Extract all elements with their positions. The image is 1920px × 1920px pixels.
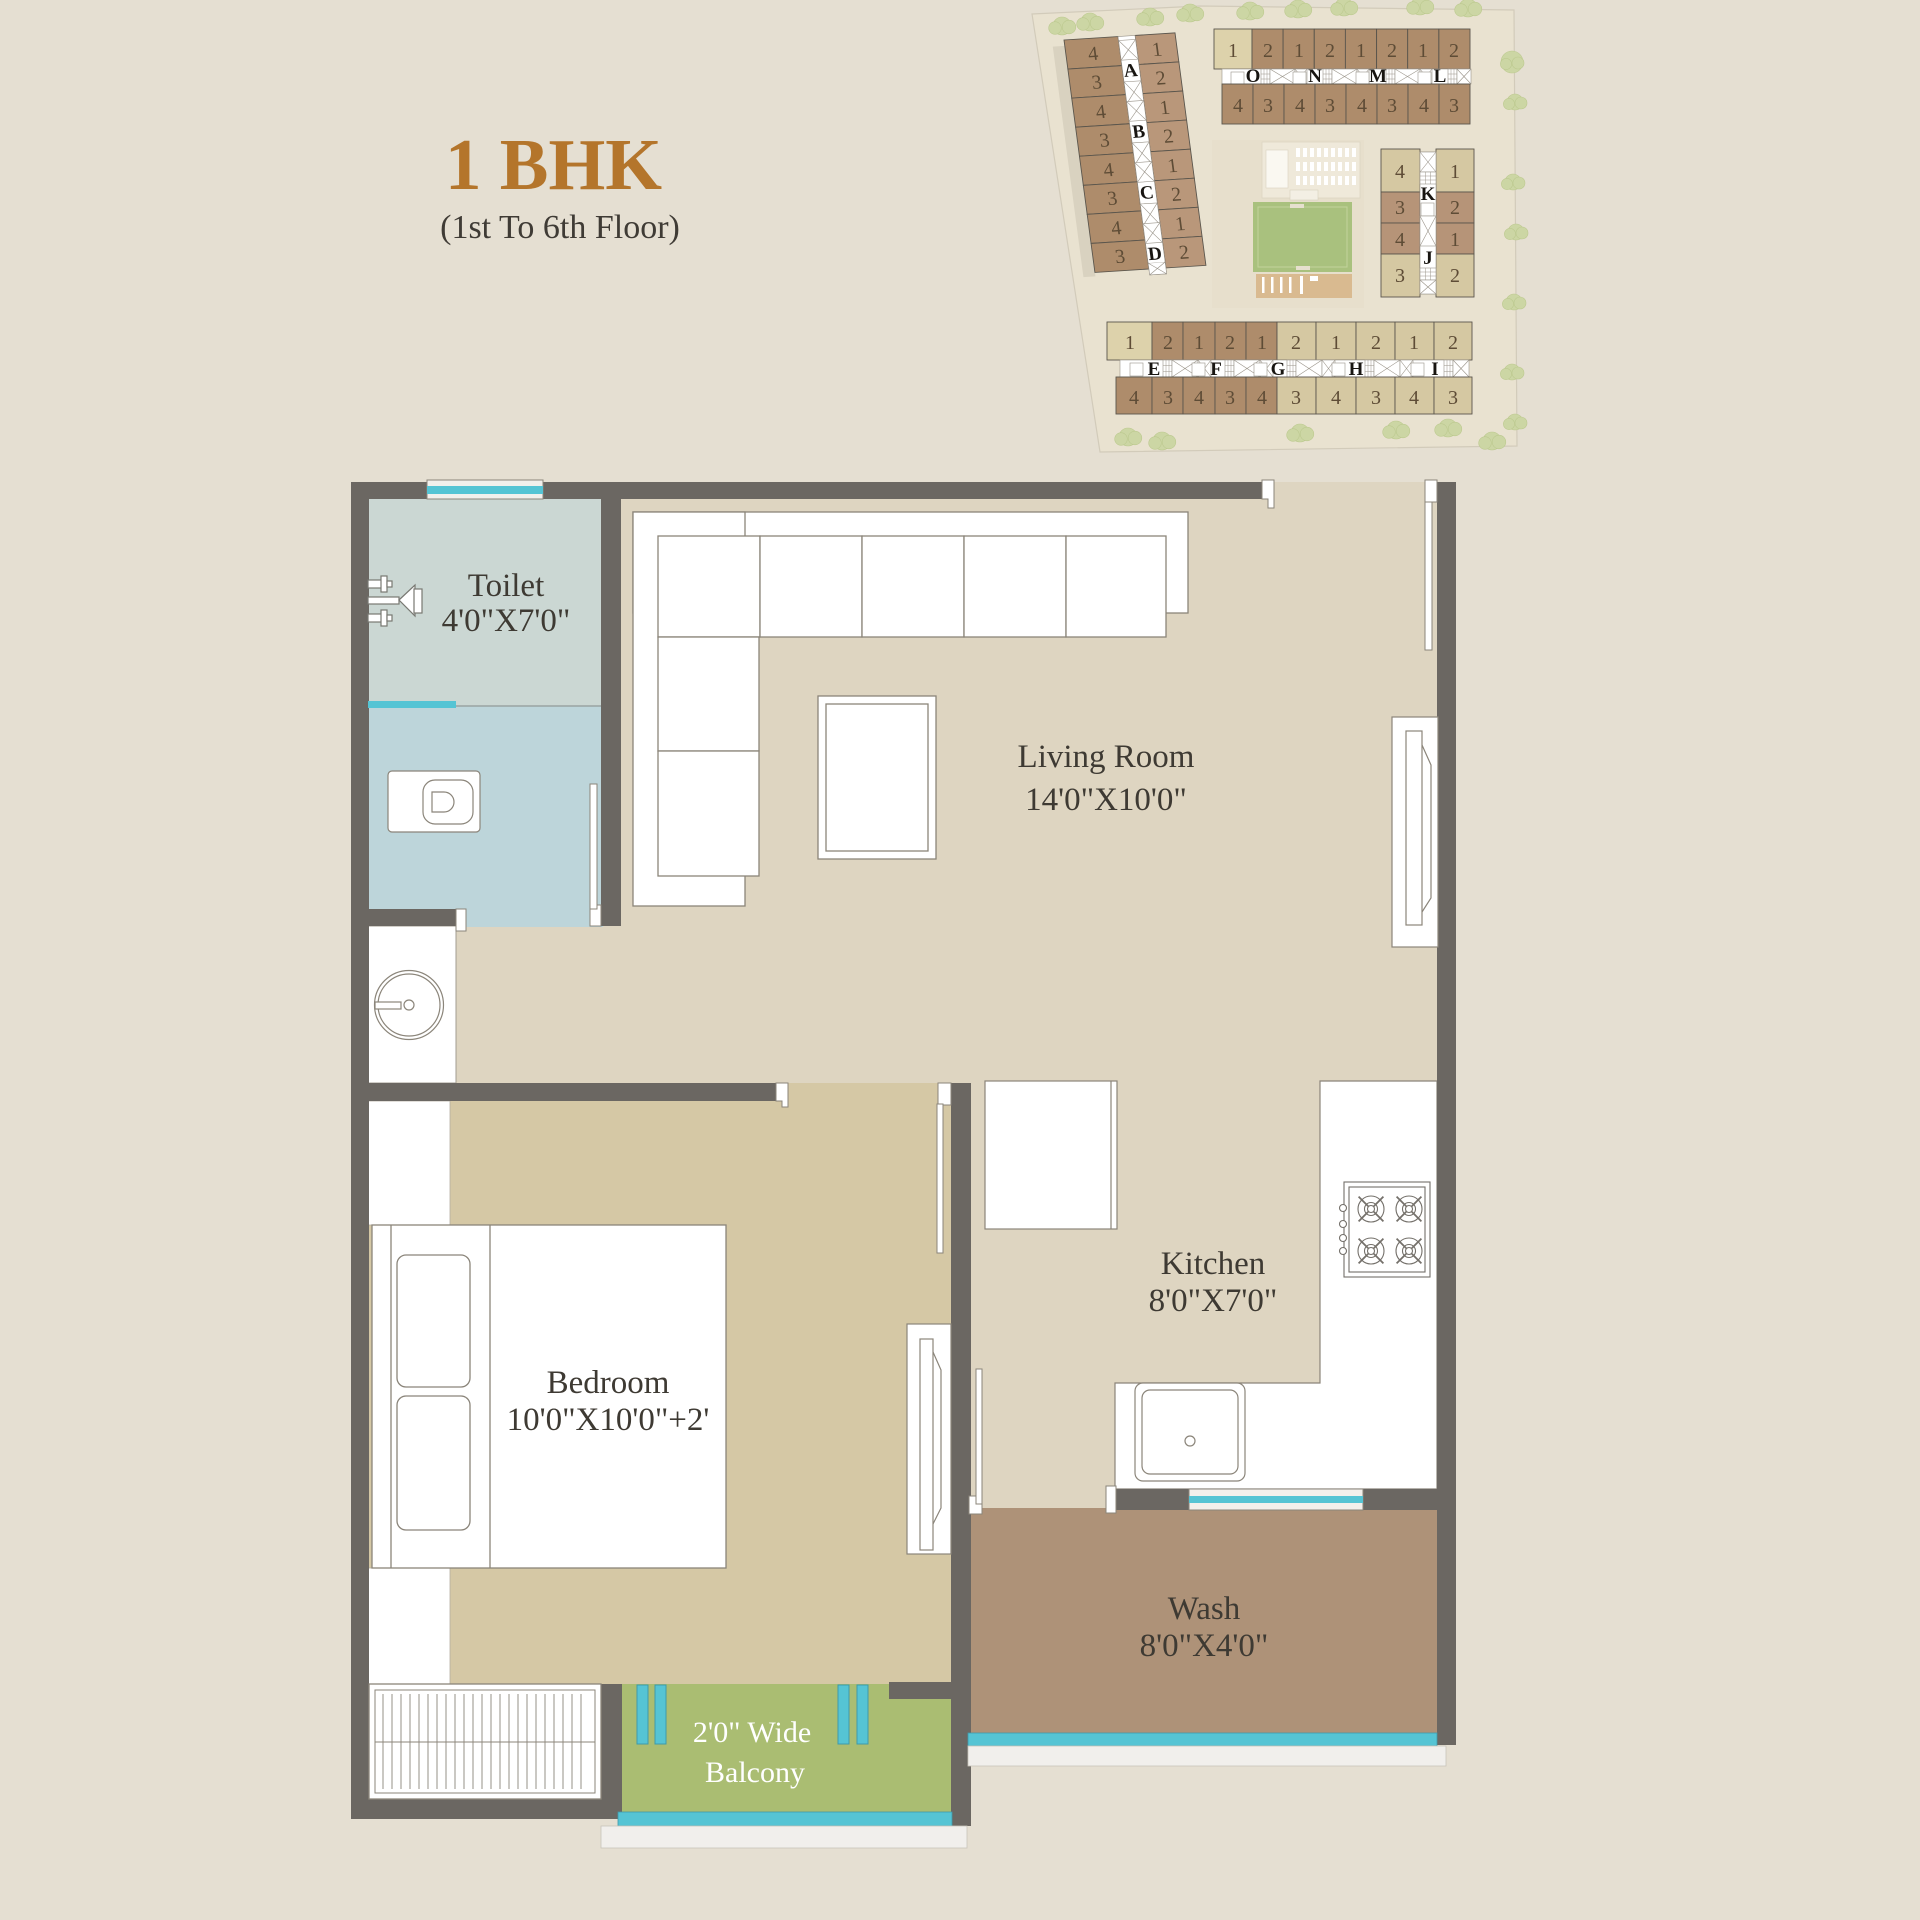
svg-text:C: C <box>1139 182 1155 204</box>
svg-text:1: 1 <box>1294 40 1304 62</box>
svg-text:4: 4 <box>1419 95 1429 117</box>
svg-text:4: 4 <box>1357 95 1367 117</box>
svg-text:Balcony: Balcony <box>705 1756 805 1789</box>
svg-text:3: 3 <box>1395 265 1405 287</box>
svg-text:1: 1 <box>1228 40 1238 62</box>
svg-text:3: 3 <box>1395 197 1405 219</box>
svg-text:1: 1 <box>1409 332 1419 354</box>
svg-text:2: 2 <box>1387 40 1397 62</box>
svg-text:2: 2 <box>1291 332 1301 354</box>
svg-text:2: 2 <box>1448 332 1458 354</box>
svg-text:J: J <box>1423 248 1433 269</box>
svg-text:1: 1 <box>1450 229 1460 251</box>
svg-text:4: 4 <box>1295 95 1305 117</box>
svg-text:10'0"X10'0"+2': 10'0"X10'0"+2' <box>507 1402 710 1438</box>
svg-text:8'0"X7'0": 8'0"X7'0" <box>1149 1283 1278 1319</box>
svg-text:1: 1 <box>1125 332 1135 354</box>
svg-text:2'0" Wide: 2'0" Wide <box>693 1716 811 1749</box>
svg-text:3: 3 <box>1371 387 1381 409</box>
svg-text:D: D <box>1147 243 1163 265</box>
svg-text:2: 2 <box>1450 265 1460 287</box>
svg-text:3: 3 <box>1387 95 1397 117</box>
svg-text:3: 3 <box>1163 387 1173 409</box>
svg-text:4: 4 <box>1194 387 1204 409</box>
svg-text:G: G <box>1271 359 1286 380</box>
svg-text:1: 1 <box>1257 332 1267 354</box>
svg-text:2: 2 <box>1450 197 1460 219</box>
svg-text:O: O <box>1246 66 1261 87</box>
svg-text:M: M <box>1369 66 1387 87</box>
svg-text:3: 3 <box>1448 387 1458 409</box>
svg-text:2: 2 <box>1371 332 1381 354</box>
svg-text:N: N <box>1308 66 1322 87</box>
svg-text:I: I <box>1431 359 1438 380</box>
svg-text:4: 4 <box>1331 387 1341 409</box>
svg-text:Living Room: Living Room <box>1018 739 1195 775</box>
svg-text:4: 4 <box>1395 161 1405 183</box>
svg-text:Wash: Wash <box>1168 1591 1241 1627</box>
svg-text:1 BHK: 1 BHK <box>445 124 662 205</box>
svg-text:2: 2 <box>1449 40 1459 62</box>
svg-text:1: 1 <box>1194 332 1204 354</box>
svg-text:Toilet: Toilet <box>468 568 545 604</box>
svg-text:(1st To 6th Floor): (1st To 6th Floor) <box>440 209 680 246</box>
svg-text:4: 4 <box>1129 387 1139 409</box>
svg-text:F: F <box>1210 359 1222 380</box>
svg-text:2: 2 <box>1325 40 1335 62</box>
svg-text:1: 1 <box>1418 40 1428 62</box>
svg-text:E: E <box>1148 359 1161 380</box>
svg-text:1: 1 <box>1356 40 1366 62</box>
svg-text:1: 1 <box>1331 332 1341 354</box>
svg-text:3: 3 <box>1263 95 1273 117</box>
svg-text:3: 3 <box>1449 95 1459 117</box>
svg-text:4: 4 <box>1257 387 1267 409</box>
svg-text:2: 2 <box>1263 40 1273 62</box>
svg-text:4'0"X7'0": 4'0"X7'0" <box>442 603 571 639</box>
svg-text:L: L <box>1434 66 1447 87</box>
svg-text:2: 2 <box>1225 332 1235 354</box>
svg-text:3: 3 <box>1325 95 1335 117</box>
svg-text:14'0"X10'0": 14'0"X10'0" <box>1025 782 1187 818</box>
svg-text:3: 3 <box>1225 387 1235 409</box>
svg-text:Bedroom: Bedroom <box>547 1365 670 1401</box>
svg-text:4: 4 <box>1233 95 1243 117</box>
svg-text:8'0"X4'0": 8'0"X4'0" <box>1140 1628 1269 1664</box>
svg-text:4: 4 <box>1395 229 1405 251</box>
svg-text:4: 4 <box>1409 387 1419 409</box>
svg-text:K: K <box>1421 184 1436 205</box>
svg-text:3: 3 <box>1291 387 1301 409</box>
svg-text:1: 1 <box>1450 161 1460 183</box>
svg-text:H: H <box>1349 359 1364 380</box>
svg-text:2: 2 <box>1163 332 1173 354</box>
svg-text:Kitchen: Kitchen <box>1161 1246 1265 1282</box>
